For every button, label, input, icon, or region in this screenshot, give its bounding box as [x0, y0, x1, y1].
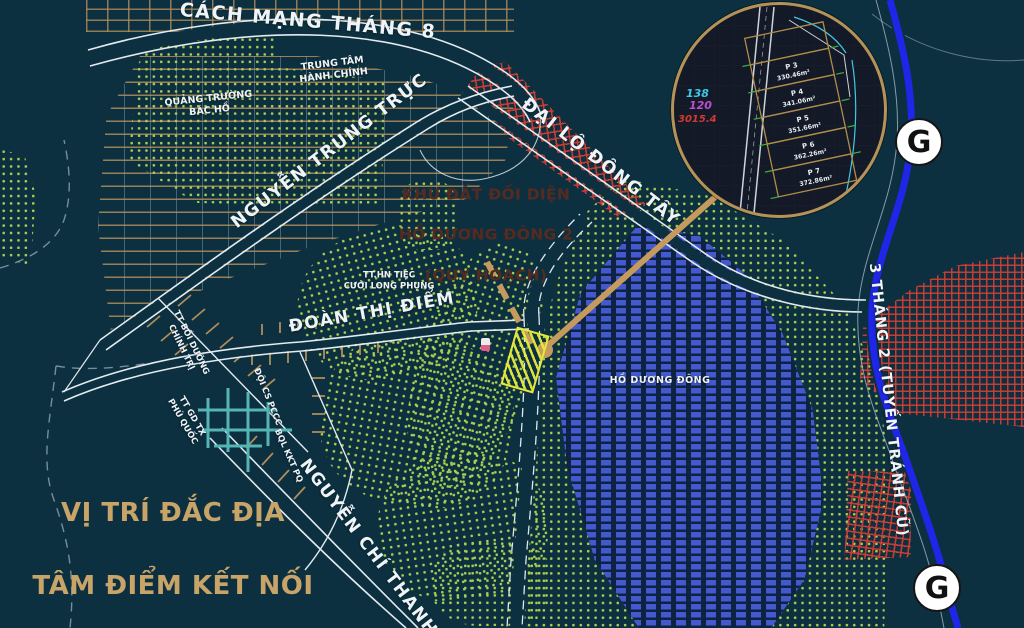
ref-number-red: 3015.4 [678, 114, 717, 125]
location-map: CÁCH MẠNG THÁNG 8 NGUYỄN TRUNG TRỰC ĐẠI … [0, 0, 1024, 628]
site-callout-line3: (QUY HOẠCH) [425, 266, 547, 284]
slogan-line1: VỊ TRÍ ĐẮC ĐỊA [61, 499, 285, 529]
location-pin-icon [481, 338, 490, 351]
slogan-line2: TÂM ĐIỂM KẾT NỐI [32, 571, 313, 601]
site-callout-text: KHU ĐẤT ĐỐI DIỆN HỒ DƯƠNG ĐÔNG 2 (QUY HO… [399, 165, 574, 286]
inset-cad-drawing: P 3 330.46m² P 4 341.06m² P 5 351.66m² P… [674, 5, 884, 215]
ref-number-magenta: 120 [689, 99, 712, 112]
g-marker-bottom: G [913, 564, 961, 612]
slogan-text: VỊ TRÍ ĐẮC ĐỊA TÂM ĐIỂM KẾT NỐI [32, 459, 313, 605]
site-callout-line1: KHU ĐẤT ĐỐI DIỆN [402, 186, 570, 204]
g-marker-top: G [895, 118, 943, 166]
plot-detail-magnifier: P 3 330.46m² P 4 341.06m² P 5 351.66m² P… [671, 2, 887, 218]
lake-label: HỒ DƯƠNG ĐÔNG [610, 375, 711, 387]
site-callout-line2: HỒ DƯƠNG ĐÔNG 2 [399, 226, 574, 244]
